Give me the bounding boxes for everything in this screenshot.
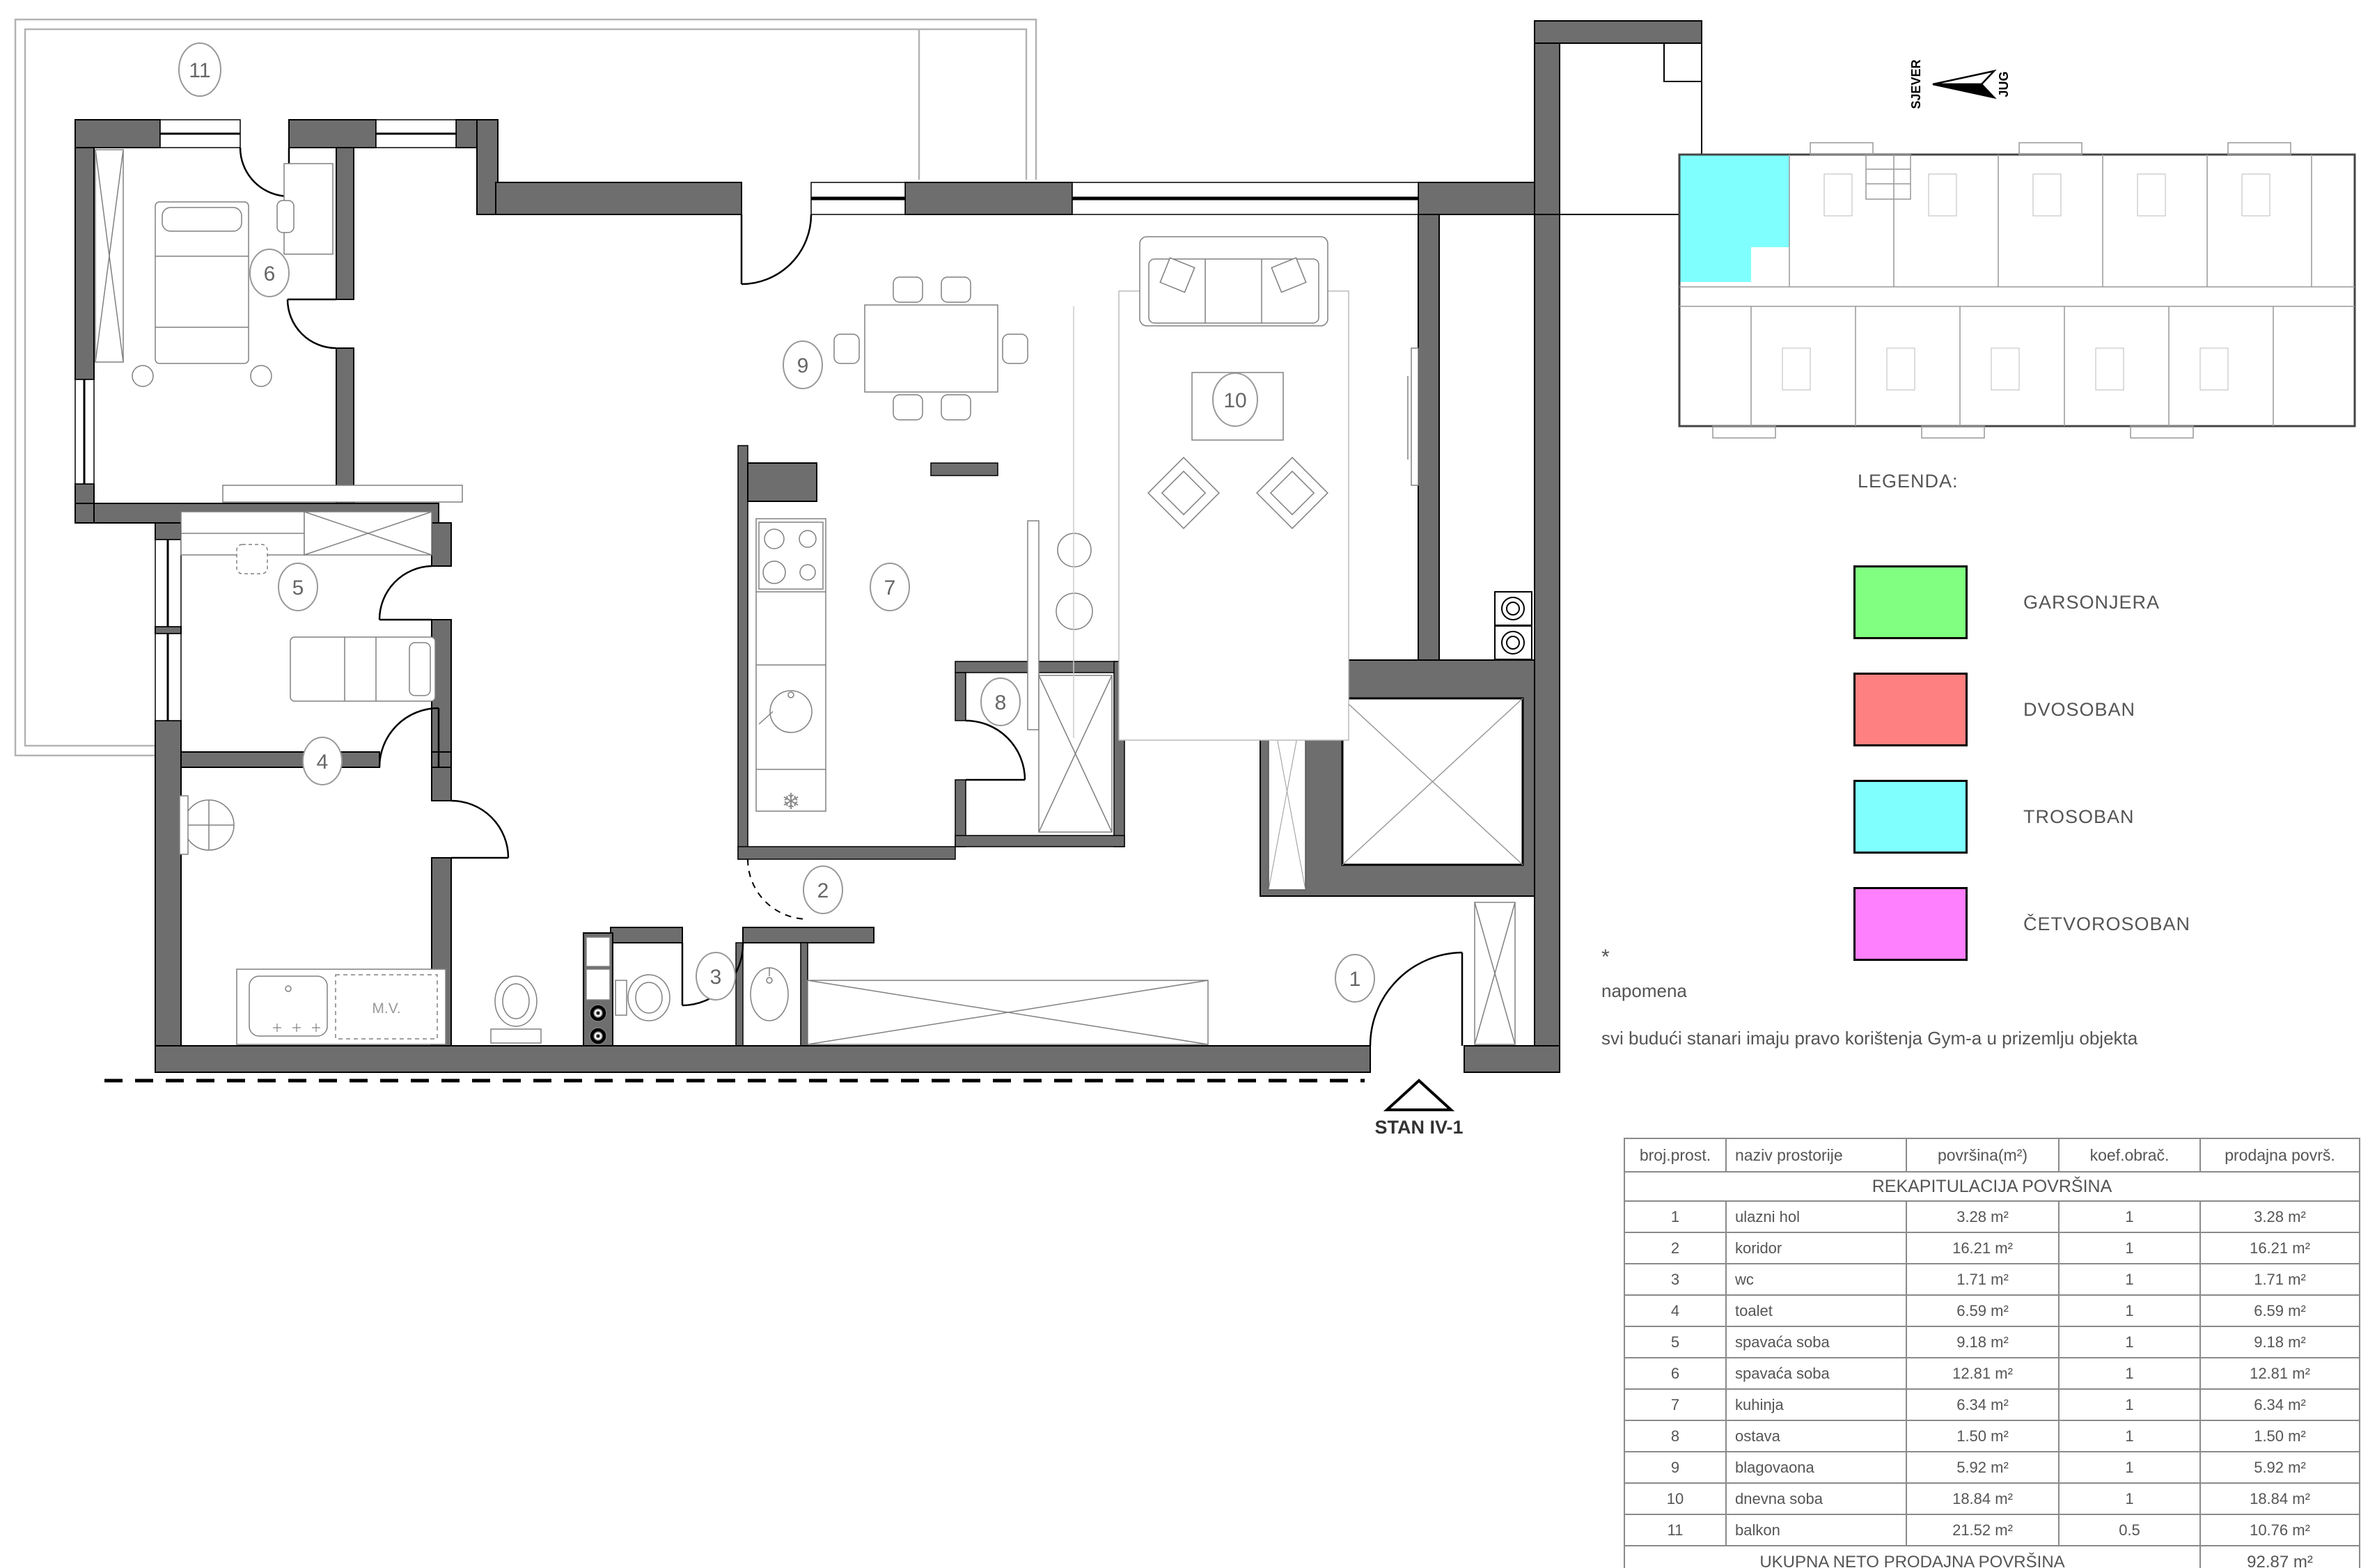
desk-room6	[277, 164, 333, 254]
dining-set	[834, 277, 1028, 420]
table-cell: dnevna soba	[1726, 1483, 1906, 1514]
table-cell: kuhinja	[1726, 1389, 1906, 1420]
table-footer-value: 92.87 m²	[2200, 1546, 2360, 1568]
toilet-room4	[491, 976, 541, 1043]
wardrobe-room6	[95, 150, 123, 362]
table-cell: 12.81 m²	[2200, 1358, 2360, 1389]
table-footer-row: UKUPNA NETO PRODAJNA POVRŠINA 92.87 m²	[1624, 1546, 2360, 1568]
table-cell: 4	[1624, 1295, 1726, 1326]
table-cell: 1	[2059, 1326, 2200, 1358]
room-circle-1: 1	[1335, 955, 1374, 1002]
table-row: 9blagovaona5.92 m²15.92 m²	[1624, 1452, 2360, 1483]
table-row: 8ostava1.50 m²11.50 m²	[1624, 1420, 2360, 1452]
table-row: 1ulazni hol3.28 m²13.28 m²	[1624, 1201, 2360, 1232]
table-footer-label: UKUPNA NETO PRODAJNA POVRŠINA	[1624, 1546, 2200, 1568]
table-cell: ostava	[1726, 1420, 1906, 1452]
sink-room3	[751, 968, 788, 1021]
table-cell: 3	[1624, 1264, 1726, 1295]
room-circle-8: 8	[981, 678, 1020, 726]
svg-text:7: 7	[884, 577, 896, 599]
table-cell: 16.21 m²	[1906, 1232, 2059, 1264]
table-cell: wc	[1726, 1264, 1906, 1295]
table-row: 6spavaća soba12.81 m²112.81 m²	[1624, 1358, 2360, 1389]
table-cell: 1	[2059, 1232, 2200, 1264]
room-circle-6: 6	[250, 249, 289, 297]
svg-text:3: 3	[710, 966, 722, 989]
table-cell: 6	[1624, 1358, 1726, 1389]
wardrobe-entry	[1475, 902, 1515, 1044]
sofa	[1140, 237, 1328, 326]
table-cell: 18.84 m²	[2200, 1483, 2360, 1514]
svg-text:8: 8	[995, 691, 1007, 714]
legend-label: ČETVOROSOBAN	[2023, 914, 2190, 935]
wardrobe-corridor	[808, 980, 1208, 1044]
table-row: 3wc1.71 m²11.71 m²	[1624, 1264, 2360, 1295]
key-plan-highlight	[1679, 155, 1789, 282]
note-body: svi budući stanari imaju pravo korištenj…	[1601, 1028, 2138, 1049]
table-row: 7kuhinja6.34 m²16.34 m²	[1624, 1389, 2360, 1420]
table-cell: 3.28 m²	[2200, 1201, 2360, 1232]
table-title: REKAPITULACIJA POVRŠINA	[1624, 1172, 2360, 1201]
north-arrow-bottom	[1933, 84, 1994, 97]
freezer-icon: ❄	[782, 789, 801, 814]
table-cell: 6.34 m²	[1906, 1389, 2059, 1420]
legend-label: GARSONJERA	[2023, 592, 2160, 613]
room-circle-2: 2	[803, 866, 842, 914]
svg-text:6: 6	[264, 262, 276, 285]
room-circle-4: 4	[303, 737, 342, 785]
room-circle-7: 7	[870, 563, 909, 611]
table-cell: 1	[2059, 1483, 2200, 1514]
bed-room5	[290, 637, 435, 701]
table-cell: 1	[2059, 1420, 2200, 1452]
table-cell: toalet	[1726, 1295, 1906, 1326]
table-cell: 21.52 m²	[1906, 1514, 2059, 1546]
unit-label: STAN IV-1	[1374, 1117, 1463, 1138]
table-cell: 10.76 m²	[2200, 1514, 2360, 1546]
mv-label: M.V.	[372, 1001, 400, 1017]
table-cell: 1.50 m²	[1906, 1420, 2059, 1452]
table-cell: 1	[2059, 1201, 2200, 1232]
col-povrsina: površina(m²)	[1906, 1138, 2059, 1172]
table-cell: 9	[1624, 1452, 1726, 1483]
wardrobe-room8	[1039, 675, 1112, 832]
table-cell: 6.59 m²	[1906, 1295, 2059, 1326]
wardrobe-room5	[304, 512, 432, 555]
table-cell: 6.34 m²	[2200, 1389, 2360, 1420]
recap-table: REKAPITULACIJA POVRŠINA broj.prost. nazi…	[1624, 1138, 2360, 1568]
table-row: 4toalet6.59 m²16.59 m²	[1624, 1295, 2360, 1326]
table-row: 5spavaća soba9.18 m²19.18 m²	[1624, 1326, 2360, 1358]
table-row: 11balkon21.52 m²0.510.76 m²	[1624, 1514, 2360, 1546]
recap-rows: 1ulazni hol3.28 m²13.28 m²2koridor16.21 …	[1624, 1201, 2360, 1546]
table-cell: 5	[1624, 1326, 1726, 1358]
legend-label: TROSOBAN	[2023, 806, 2135, 828]
svg-text:11: 11	[189, 59, 210, 82]
room-circle-3: 3	[696, 952, 735, 1000]
table-row: 10dnevna soba18.84 m²118.84 m²	[1624, 1483, 2360, 1514]
legend-item-trosoban: TROSOBAN	[1853, 780, 2135, 854]
table-cell: 3.28 m²	[1906, 1201, 2059, 1232]
legend-swatch-dvosoban	[1853, 673, 1968, 746]
table-cell: spavaća soba	[1726, 1358, 1906, 1389]
svg-text:2: 2	[817, 879, 829, 902]
tv-panel	[1408, 348, 1418, 485]
table-cell: 0.5	[2059, 1514, 2200, 1546]
room-circle-11: 11	[179, 43, 221, 96]
legend-item-cetvorosoban: ČETVOROSOBAN	[1853, 887, 2190, 961]
legend-swatch-trosoban	[1853, 780, 1968, 854]
table-cell: 8	[1624, 1420, 1726, 1452]
table-cell: 1.50 m²	[2200, 1420, 2360, 1452]
table-cell: 1	[1624, 1201, 1726, 1232]
room-circle-5: 5	[279, 563, 317, 611]
table-cell: balkon	[1726, 1514, 1906, 1546]
legend-title: LEGENDA:	[1858, 471, 1959, 492]
table-cell: 5.92 m²	[2200, 1452, 2360, 1483]
note-title: napomena	[1601, 980, 1687, 1002]
legend-item-dvosoban: DVOSOBAN	[1853, 673, 2135, 746]
table-cell: 1	[2059, 1358, 2200, 1389]
table-cell: 6.59 m²	[2200, 1295, 2360, 1326]
table-cell: 7	[1624, 1389, 1726, 1420]
svg-text:10: 10	[1223, 389, 1246, 412]
legend-label: DVOSOBAN	[2023, 699, 2135, 721]
north-label: SJEVER	[1909, 59, 1923, 109]
table-cell: 5.92 m²	[1906, 1452, 2059, 1483]
room-circle-9: 9	[783, 341, 822, 389]
table-cell: 11	[1624, 1514, 1726, 1546]
table-cell: 1	[2059, 1295, 2200, 1326]
table-cell: 12.81 m²	[1906, 1358, 2059, 1389]
table-cell: ulazni hol	[1726, 1201, 1906, 1232]
room-circle-10: 10	[1213, 373, 1257, 426]
table-cell: 16.21 m²	[2200, 1232, 2360, 1264]
table-cell: 1.71 m²	[1906, 1264, 2059, 1295]
table-cell: 9.18 m²	[1906, 1326, 2059, 1358]
chair-room5	[237, 544, 267, 574]
svg-text:9: 9	[797, 354, 809, 377]
col-broj-prost: broj.prost.	[1624, 1138, 1726, 1172]
table-cell: 9.18 m²	[2200, 1326, 2360, 1358]
rug	[1119, 291, 1349, 740]
legend-item-garsonjera: GARSONJERA	[1853, 565, 2160, 639]
bed-room6	[132, 202, 272, 386]
shower-room4	[180, 796, 234, 854]
table-cell: 1	[2059, 1389, 2200, 1420]
table-cell: spavaća soba	[1726, 1326, 1906, 1358]
key-plan	[1679, 143, 2355, 438]
col-koef-obrac: koef.obrač.	[2059, 1138, 2200, 1172]
col-naziv-prostorije: naziv prostorije	[1726, 1138, 1906, 1172]
svg-text:5: 5	[292, 577, 304, 599]
table-cell: 1.71 m²	[2200, 1264, 2360, 1295]
north-arrow: SJEVER JUG	[1909, 59, 2011, 109]
table-cell: 18.84 m²	[1906, 1483, 2059, 1514]
south-label: JUG	[1997, 71, 2011, 97]
north-arrow-top	[1933, 71, 1994, 84]
col-prodajna-povrs: prodajna površ.	[2200, 1138, 2360, 1172]
table-cell: blagovaona	[1726, 1452, 1906, 1483]
entrance-marker: STAN IV-1	[1374, 1081, 1463, 1138]
table-cell: 1	[2059, 1264, 2200, 1295]
page: ❄	[0, 0, 2361, 1568]
kitchen-counter	[756, 519, 826, 811]
vent-boxes	[1495, 592, 1532, 659]
legend-swatch-garsonjera	[1853, 565, 1968, 639]
table-cell: 1	[2059, 1452, 2200, 1483]
table-title-row: REKAPITULACIJA POVRŠINA	[1624, 1172, 2360, 1201]
table-cell: koridor	[1726, 1232, 1906, 1264]
toilet-room3	[615, 975, 670, 1021]
table-row: 2koridor16.21 m²116.21 m²	[1624, 1232, 2360, 1264]
table-cell: 2	[1624, 1232, 1726, 1264]
note-star: *	[1601, 946, 1610, 969]
legend-swatch-cetvorosoban	[1853, 887, 1968, 961]
table-header-row: broj.prost. naziv prostorije površina(m²…	[1624, 1138, 2360, 1172]
svg-text:1: 1	[1349, 968, 1361, 991]
svg-text:4: 4	[317, 751, 329, 774]
table-cell: 10	[1624, 1483, 1726, 1514]
bench-room6	[223, 485, 462, 502]
